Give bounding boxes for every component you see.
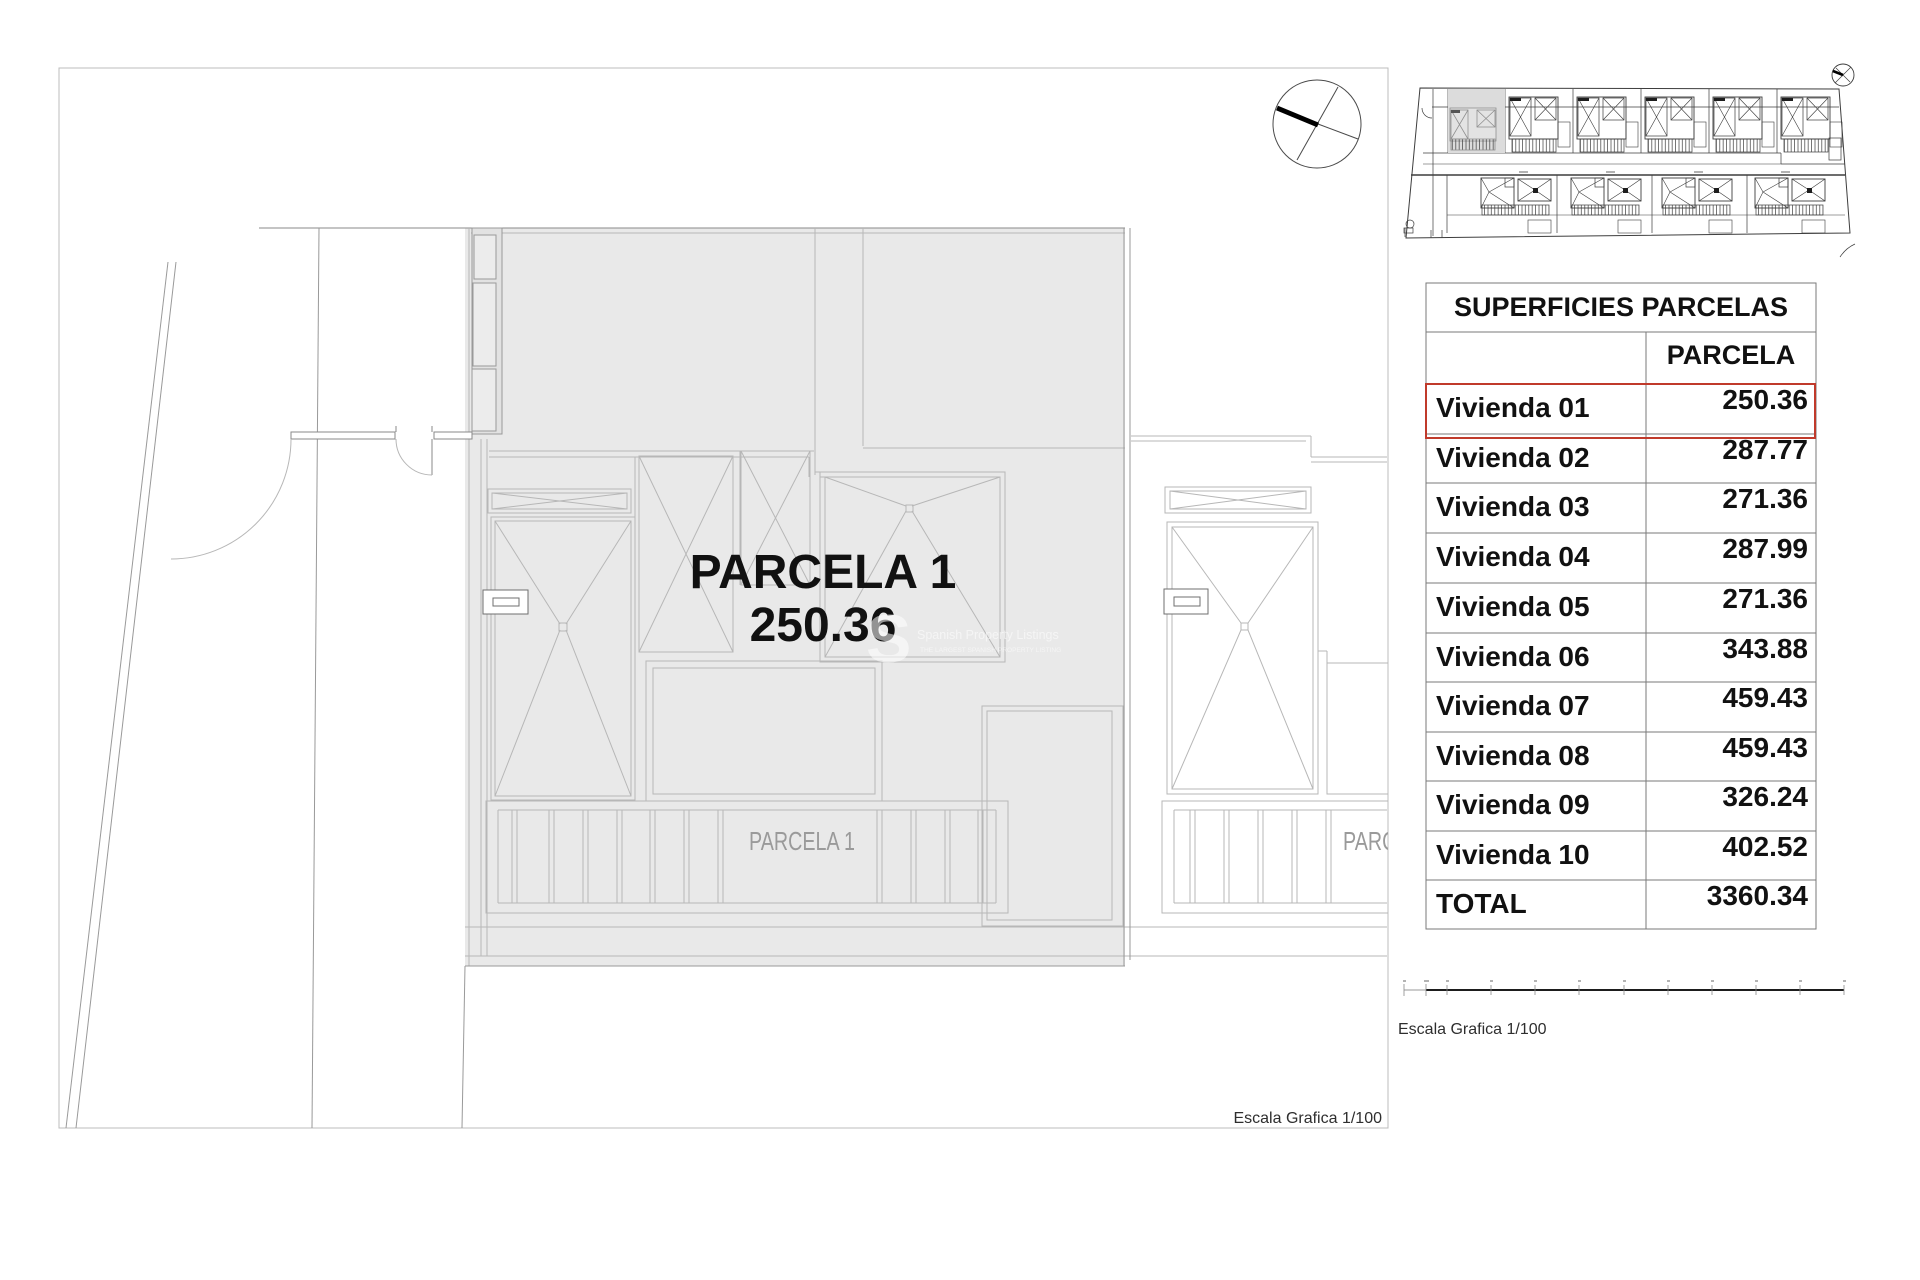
- svg-text:PARCELA: PARCELA: [1667, 340, 1796, 370]
- svg-text:459.43: 459.43: [1722, 682, 1808, 713]
- svg-text:PARCELA 1: PARCELA 1: [690, 546, 957, 599]
- svg-text:271.36: 271.36: [1722, 483, 1808, 514]
- svg-text:271.36: 271.36: [1722, 583, 1808, 614]
- svg-text:459.43: 459.43: [1722, 732, 1808, 763]
- svg-text:3360.34: 3360.34: [1707, 880, 1809, 911]
- svg-text:Escala Grafica 1/100: Escala Grafica 1/100: [1233, 1110, 1382, 1127]
- svg-text:287.99: 287.99: [1722, 533, 1808, 564]
- svg-text:343.88: 343.88: [1722, 633, 1808, 664]
- svg-text:THE LARGEST SPANISH PROPERTY L: THE LARGEST SPANISH PROPERTY LISTING: [920, 647, 1061, 654]
- svg-text:Escala Grafica 1/100: Escala Grafica 1/100: [1398, 1021, 1547, 1038]
- svg-text:TOTAL: TOTAL: [1436, 888, 1527, 919]
- svg-text:326.24: 326.24: [1722, 781, 1808, 812]
- svg-text:Vivienda 05: Vivienda 05: [1436, 591, 1590, 622]
- svg-text:Vivienda 03: Vivienda 03: [1436, 491, 1590, 522]
- svg-text:Vivienda 09: Vivienda 09: [1436, 789, 1590, 820]
- svg-text:Vivienda 01: Vivienda 01: [1436, 392, 1590, 423]
- svg-text:S: S: [866, 601, 911, 677]
- svg-text:Vivienda 02: Vivienda 02: [1436, 442, 1590, 473]
- svg-text:Vivienda 04: Vivienda 04: [1436, 541, 1590, 572]
- svg-text:402.52: 402.52: [1722, 831, 1808, 862]
- svg-text:Spanish Property Listings: Spanish Property Listings: [917, 628, 1059, 642]
- svg-text:250.36: 250.36: [1722, 384, 1808, 415]
- svg-text:Vivienda 08: Vivienda 08: [1436, 740, 1590, 771]
- svg-text:Vivienda 06: Vivienda 06: [1436, 641, 1590, 672]
- svg-text:SUPERFICIES PARCELAS: SUPERFICIES PARCELAS: [1454, 292, 1788, 322]
- svg-text:Vivienda 07: Vivienda 07: [1436, 690, 1590, 721]
- svg-text:Vivienda 10: Vivienda 10: [1436, 839, 1590, 870]
- svg-text:PARCELA 1: PARCELA 1: [749, 826, 855, 856]
